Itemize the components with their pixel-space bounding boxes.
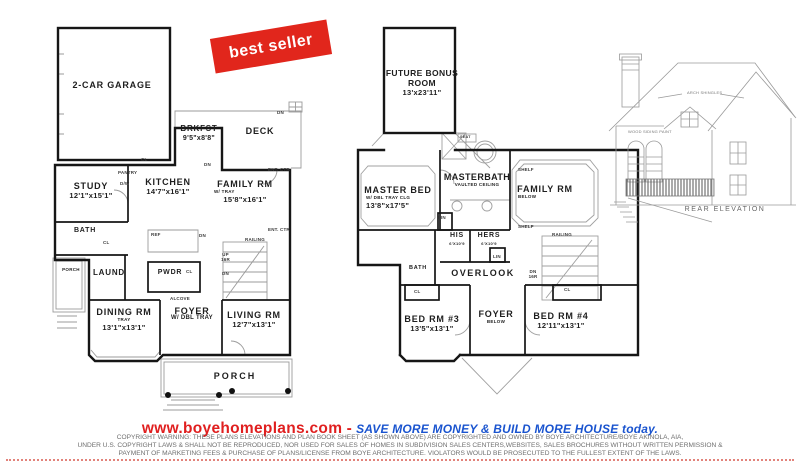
tag-ent-ctr-upper: ENT. CTR [268, 167, 290, 172]
room-brkfst-dim: 9'5"x8'8" [172, 134, 226, 143]
tag-lin-2: LIN [493, 254, 501, 259]
elevation-siding-label: WOOD SIDING PAINT [628, 129, 672, 134]
room-dining-dim: 13'1"x13'1" [88, 323, 160, 332]
room-deck: DECK [232, 126, 288, 136]
room-bed3: BED RM #3 13'5"x13'1" [398, 314, 466, 333]
room-porch-name: PORCH [200, 371, 270, 381]
room-family-1: FAMILY RM W/ TRAY 15'8"x16'1" [208, 179, 282, 204]
room-family-2: FAMILY RM BELOW [510, 184, 580, 200]
tag-alcove: ALCOVE [170, 296, 190, 301]
room-foyer-2-sub: BELOW [472, 319, 520, 325]
first-floor-walls-drawing [45, 14, 307, 426]
room-foyer-1-sub: W/ DBL TRAY [164, 316, 220, 322]
room-bonus-name: FUTURE BONUS ROOM [384, 68, 460, 88]
plan-sheet: best seller 2-CAR GARAGE BRKFST 9'5"x8'8… [0, 0, 800, 464]
room-side-porch-name: PORCH [58, 267, 84, 273]
room-his-name: HIS [444, 231, 470, 241]
room-garage: 2-CAR GARAGE [62, 80, 162, 90]
room-living-dim: 12'7"x13'1" [222, 320, 286, 329]
tag-lin-1: LIN [438, 215, 446, 220]
room-family-1-name: FAMILY RM [208, 179, 282, 189]
room-deck-name: DECK [232, 126, 288, 136]
tag-dn-deck: DN [277, 110, 284, 115]
room-foyer-2-name: FOYER [472, 309, 520, 319]
room-foyer-1: FOYER W/ DBL TRAY [164, 306, 220, 322]
room-bed4-name: BED RM #4 [528, 311, 594, 321]
room-bed4: BED RM #4 12'11"x13'1" [528, 311, 594, 330]
room-master: MASTER BED W/ DBL TRAY CLG 13'8"x17'5" [360, 185, 436, 210]
room-powdr: PWDR [153, 268, 187, 278]
room-laund-name: LAUND [88, 268, 130, 278]
copyright-block: COPYRIGHT WARNING: THESE PLANS ELEVATION… [0, 434, 800, 459]
tag-dn-kitchen: DN [204, 162, 211, 167]
room-hers-dim: 6'X10'9 [473, 241, 505, 247]
room-living-name: LIVING RM [222, 310, 286, 320]
bottom-dotted-divider [6, 459, 794, 461]
room-bath-1-name: BATH [68, 226, 102, 236]
room-masterbath-name: MASTERBATH [440, 172, 514, 182]
room-bed3-dim: 13'5"x13'1" [398, 324, 466, 333]
room-living: LIVING RM 12'7"x13'1" [222, 310, 286, 329]
tag-pantry: PANTRY [118, 170, 137, 175]
tag-cl-kitchen: CL [141, 157, 147, 162]
room-kitchen-name: KITCHEN [136, 177, 200, 187]
tag-cl-bed4: CL [564, 287, 570, 292]
room-study-name: STUDY [58, 181, 124, 191]
room-family-2-sub: BELOW [510, 194, 580, 200]
room-hers-name: HERS [473, 231, 505, 241]
room-study-dim: 12'1"x15'1" [58, 191, 124, 200]
room-bath-1: BATH [68, 226, 102, 236]
elevation-shingles-label: ARCH SHINGLES [687, 90, 722, 95]
room-bed3-name: BED RM #3 [398, 314, 466, 324]
room-masterbath: MASTERBATH VAULTED CEILING [440, 172, 514, 188]
room-study: STUDY 12'1"x15'1" [58, 181, 124, 200]
tag-railing-1: RAILING [245, 237, 265, 242]
tag-ref: REF [151, 232, 161, 237]
room-kitchen: KITCHEN 14'7"x16'1" [136, 177, 200, 196]
room-brkfst: BRKFST 9'5"x8'8" [172, 124, 226, 143]
room-overlook-name: OVERLOOK [448, 268, 518, 278]
tag-shelf-lower: SHELF [518, 224, 534, 229]
elevation-title: REAR ELEVATION [680, 206, 770, 213]
room-kitchen-dim: 14'7"x16'1" [136, 187, 200, 196]
tag-dn-family: DN [199, 233, 206, 238]
tag-dw: D/W [120, 181, 129, 186]
room-bath-2-name: BATH [404, 263, 432, 273]
best-seller-label: best seller [228, 31, 314, 63]
room-master-name: MASTER BED [360, 185, 436, 195]
room-porch: PORCH [200, 371, 270, 381]
room-side-porch: PORCH [58, 267, 84, 273]
room-garage-name: 2-CAR GARAGE [62, 80, 162, 90]
room-bonus-dim: 13'x23'11" [384, 88, 460, 97]
tag-cl-bed3: CL [414, 289, 420, 294]
rear-elevation-drawing [608, 52, 798, 224]
room-overlook: OVERLOOK [448, 268, 518, 278]
tag-up-16r: UP 16R [220, 252, 231, 262]
room-bath-2: BATH [404, 263, 432, 273]
room-laund: LAUND [88, 268, 130, 278]
room-brkfst-name: BRKFST [172, 124, 226, 134]
room-masterbath-sub: VAULTED CEILING [440, 182, 514, 188]
room-master-dim: 13'8"x17'5" [360, 201, 436, 210]
tag-cl-powdr: CL [186, 269, 192, 274]
copyright-line-1: COPYRIGHT WARNING: THESE PLANS ELEVATION… [0, 434, 800, 442]
tag-shelf-upper: SHELF [518, 167, 534, 172]
room-bed4-dim: 12'11"x13'1" [528, 321, 594, 330]
copyright-line-3: PAYMENT OF MARKETING FEES & PURCHASE OF … [0, 450, 800, 458]
room-family-1-dim: 15'8"x16'1" [208, 195, 282, 204]
room-powdr-name: PWDR [153, 268, 187, 278]
tag-seat: SEAT [460, 135, 471, 140]
room-his: HIS 6'X10'9 [444, 231, 470, 247]
room-his-dim: 6'X10'9 [444, 241, 470, 247]
room-dining-name: DINING RM [88, 307, 160, 317]
tag-railing-2: RAILING [552, 232, 572, 237]
tag-dn-stairs: DN [222, 271, 229, 276]
room-foyer-2: FOYER BELOW [472, 309, 520, 325]
tag-cl-bath: CL [103, 240, 109, 245]
tag-dn-16r: DN 16R [527, 269, 539, 279]
room-hers: HERS 6'X10'9 [473, 231, 505, 247]
tag-ent-ctr-lower: ENT. CTR [268, 227, 290, 232]
room-family-2-name: FAMILY RM [510, 184, 580, 194]
room-bonus: FUTURE BONUS ROOM 13'x23'11" [384, 68, 460, 97]
room-dining: DINING RM TRAY 13'1"x13'1" [88, 307, 160, 332]
copyright-line-2: UNDER U.S. COPYRIGHT LAWS & SHALL NOT BE… [0, 442, 800, 450]
